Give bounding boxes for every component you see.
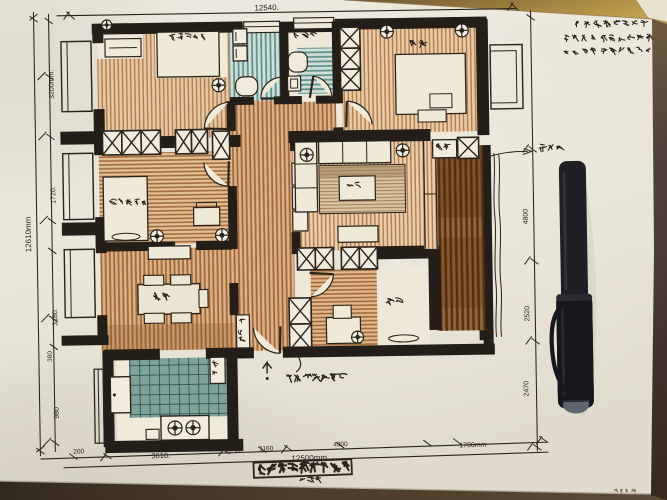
svg-text:4300: 4300 (333, 441, 348, 448)
svg-text:3610.: 3610. (151, 451, 170, 461)
svg-text:12540.: 12540. (254, 3, 279, 13)
svg-text:200: 200 (73, 448, 84, 455)
svg-text:380: 380 (47, 351, 54, 362)
svg-text:2520: 2520 (524, 306, 531, 322)
svg-text:3180.: 3180. (52, 308, 59, 326)
svg-text:12610mm: 12610mm (24, 216, 34, 252)
svg-text:4800: 4800 (523, 209, 530, 225)
svg-text:1160: 1160 (259, 445, 274, 452)
svg-text:1720.: 1720. (50, 186, 57, 204)
svg-text:980: 980 (54, 407, 61, 419)
svg-text:1750: 1750 (225, 448, 240, 455)
svg-text:1700mm: 1700mm (459, 442, 487, 450)
svg-text:2470: 2470 (523, 381, 530, 397)
svg-text:3200mm.: 3200mm. (48, 70, 55, 99)
